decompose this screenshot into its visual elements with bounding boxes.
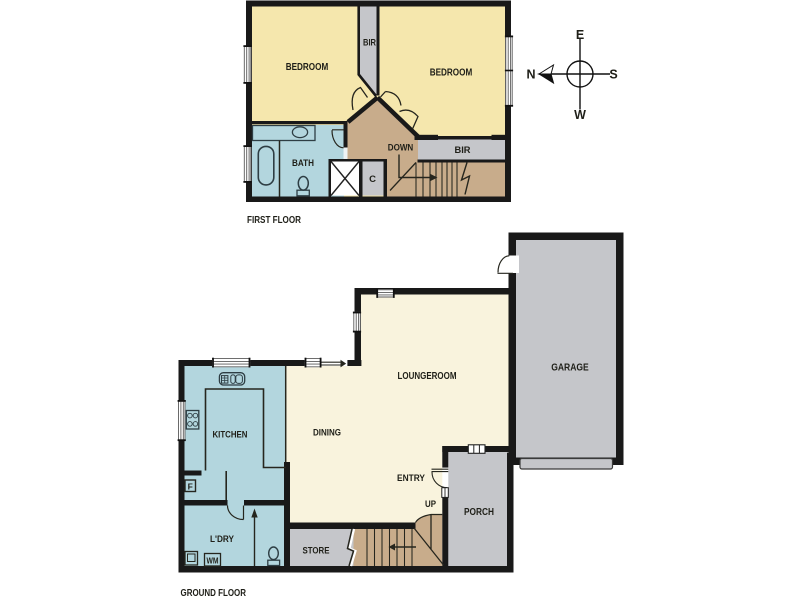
- svg-text:BIR: BIR: [363, 38, 376, 48]
- svg-text:S: S: [609, 68, 617, 82]
- svg-text:C: C: [369, 174, 376, 185]
- svg-text:L'DRY: L'DRY: [210, 534, 235, 545]
- svg-text:STORE: STORE: [303, 546, 330, 557]
- svg-text:BEDROOM: BEDROOM: [430, 67, 473, 79]
- svg-text:UP: UP: [425, 499, 437, 510]
- svg-text:WM: WM: [207, 557, 219, 566]
- svg-text:ENTRY: ENTRY: [397, 473, 426, 484]
- svg-text:BEDROOM: BEDROOM: [286, 61, 329, 73]
- svg-text:DOWN: DOWN: [388, 143, 414, 154]
- svg-text:F: F: [188, 482, 193, 492]
- svg-text:FIRST FLOOR: FIRST FLOOR: [247, 214, 301, 226]
- svg-text:E: E: [576, 28, 584, 42]
- svg-text:GARAGE: GARAGE: [551, 363, 589, 374]
- svg-text:KITCHEN: KITCHEN: [213, 430, 248, 441]
- svg-text:PORCH: PORCH: [464, 507, 494, 518]
- svg-text:N: N: [526, 68, 535, 82]
- svg-text:BIR: BIR: [455, 145, 471, 156]
- svg-text:LOUNGEROOM: LOUNGEROOM: [398, 370, 457, 382]
- svg-text:GROUND FLOOR: GROUND FLOOR: [181, 587, 247, 599]
- svg-text:BATH: BATH: [292, 158, 314, 169]
- svg-text:W: W: [574, 108, 586, 122]
- svg-text:DINING: DINING: [313, 428, 341, 439]
